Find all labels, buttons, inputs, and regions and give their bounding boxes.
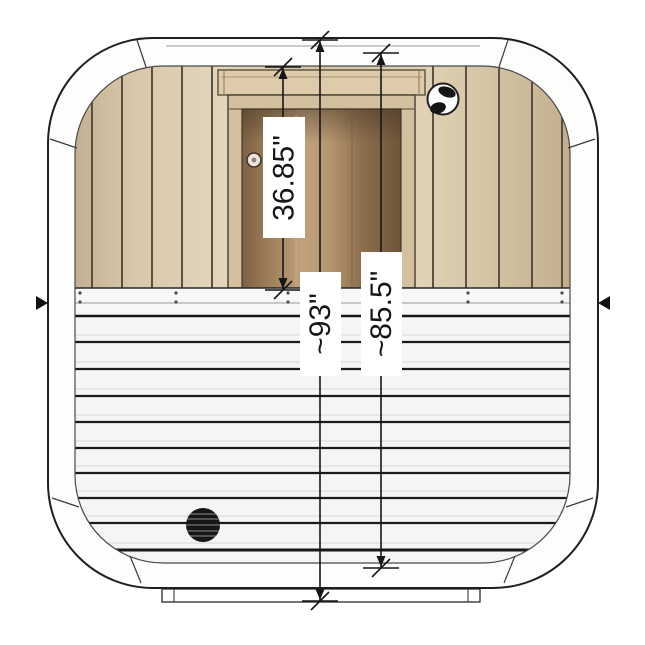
drawing-canvas: 36.85" ~85.5" ~93"	[0, 0, 645, 645]
air-vent-icon	[428, 84, 459, 116]
dimension-label-interior-height: ~85.5"	[365, 271, 398, 358]
seam-arrow-left-icon	[36, 296, 48, 310]
door-handle-center	[252, 158, 257, 163]
door-header-board	[218, 70, 425, 95]
drain-vent-icon	[186, 508, 220, 542]
dimension-label-overall-height: ~93"	[304, 293, 337, 355]
seam-arrow-right-icon	[598, 296, 610, 310]
sauna-elevation-drawing: 36.85" ~85.5" ~93"	[0, 0, 645, 645]
dimension-label-door-height: 36.85"	[268, 135, 301, 221]
